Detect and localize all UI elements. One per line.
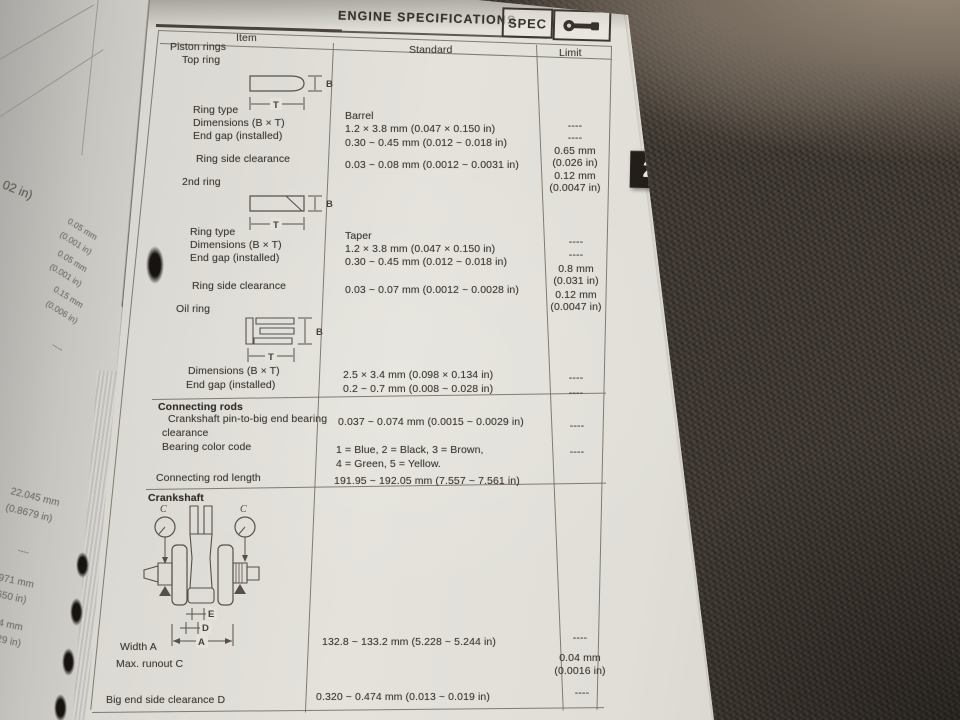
row-label-pin-bearing-clearance-2: clearance	[162, 427, 208, 439]
dim-label-d: D	[202, 623, 209, 634]
row-label-end-gap: End gap (installed)	[186, 379, 275, 391]
cell-limit: ----	[540, 446, 614, 458]
cell-limit: ----	[539, 249, 613, 261]
page-title: ENGINE SPECIFICATIONS	[338, 9, 517, 28]
cell-standard: 0.037 ~ 0.074 mm (0.0015 ~ 0.0029 in)	[338, 416, 524, 428]
dim-label-c: C	[240, 504, 247, 515]
binding-hole	[62, 648, 75, 676]
page-fold-line	[0, 5, 94, 63]
row-label-ring-type: Ring type	[190, 226, 235, 238]
cell-limit: (0.0047 in)	[538, 182, 612, 194]
cell-limit: ----	[538, 120, 612, 132]
cell-limit: ----	[539, 372, 613, 384]
section-title-connecting-rods: Connecting rods	[158, 401, 243, 413]
cell-limit: 0.8 mm	[539, 263, 613, 275]
cell-standard: 1.2 × 3.8 mm (0.047 × 0.150 in)	[345, 123, 495, 135]
cell-limit: (0.0016 in)	[543, 665, 617, 677]
cell-limit: ----	[543, 632, 617, 644]
margin-fragment: ----	[50, 340, 65, 354]
cell-limit: ----	[545, 687, 619, 699]
row-label-dimensions: Dimensions (B × T)	[188, 365, 280, 377]
cell-limit: 0.65 mm	[538, 145, 612, 157]
margin-fragment: 4 mm	[0, 618, 24, 634]
cell-limit: ----	[540, 420, 614, 432]
row-label-ring-type: Ring type	[193, 104, 238, 116]
second-ring-cross-section-diagram: B T	[242, 190, 342, 234]
table-bottom-border	[92, 707, 604, 713]
cell-limit: (0.0047 in)	[539, 301, 613, 313]
cell-standard: 0.320 ~ 0.474 mm (0.013 ~ 0.019 in)	[316, 691, 490, 703]
dim-label-a: A	[198, 637, 205, 648]
column-header-limit: Limit	[559, 47, 582, 59]
cell-standard: 0.03 ~ 0.07 mm (0.0012 ~ 0.0028 in)	[345, 284, 519, 296]
row-label-connecting-rod-length: Connecting rod length	[156, 472, 261, 484]
page-edge-highlight	[623, 4, 727, 720]
oil-ring-cross-section-diagram: B T	[238, 314, 348, 366]
dim-label-c: C	[160, 504, 167, 515]
cell-limit: 0.12 mm	[539, 289, 613, 301]
cell-limit: ----	[539, 387, 613, 399]
cell-standard: 0.2 ~ 0.7 mm (0.008 ~ 0.028 in)	[343, 383, 493, 395]
dim-label-b: B	[326, 199, 333, 210]
manual-page: ENGINE SPECIFICATIONS SPEC Item Standard…	[0, 0, 960, 720]
cell-limit: ----	[539, 236, 613, 248]
cell-standard: 4 = Green, 5 = Yellow.	[336, 458, 441, 470]
cell-standard: 0.03 ~ 0.08 mm (0.0012 ~ 0.0031 in)	[345, 159, 519, 171]
dim-label-e: E	[208, 609, 214, 620]
row-label-end-gap: End gap (installed)	[190, 252, 279, 264]
row-label-ring-side-clearance: Ring side clearance	[196, 153, 290, 165]
margin-fragment: 971 mm	[0, 572, 35, 590]
cell-standard: 0.30 ~ 0.45 mm (0.012 ~ 0.018 in)	[345, 137, 507, 149]
crankshaft-diagram: C C E	[140, 500, 280, 650]
row-label-big-end-side-clearance: Big end side clearance D	[106, 694, 225, 706]
row-label-oil-ring: Oil ring	[176, 303, 210, 315]
binding-hole	[54, 694, 67, 720]
top-ring-cross-section-diagram: B T	[242, 70, 342, 114]
row-label-max-runout-c: Max. runout C	[116, 658, 183, 670]
dim-label-b: B	[326, 79, 333, 90]
spec-icon-box	[553, 9, 612, 42]
row-label-bearing-color-code: Bearing color code	[162, 441, 251, 453]
cell-limit: ----	[538, 132, 612, 144]
margin-fragment: 02 in)	[1, 178, 35, 203]
cell-standard: 132.8 ~ 133.2 mm (5.228 ~ 5.244 in)	[322, 636, 496, 648]
column-header-item: Item	[236, 32, 257, 44]
row-label-width-a: Width A	[120, 641, 157, 653]
dim-label-t: T	[273, 100, 279, 111]
row-label-pin-bearing-clearance: Crankshaft pin-to-big end bearing	[168, 413, 327, 425]
dim-label-t: T	[273, 220, 279, 231]
row-label-end-gap: End gap (installed)	[193, 130, 282, 142]
margin-fragment: ----	[17, 545, 30, 557]
cell-standard: 1.2 × 3.8 mm (0.047 × 0.150 in)	[345, 243, 495, 255]
row-label-dimensions: Dimensions (B × T)	[190, 239, 282, 251]
photo-of-manual-page: 02 in) 0.05 mm (0.001 in) 0.05 mm (0.001…	[0, 0, 960, 720]
margin-fragment: 650 in)	[0, 589, 27, 606]
column-header-standard: Standard	[409, 44, 452, 56]
cell-standard: 1 = Blue, 2 = Black, 3 = Brown,	[336, 444, 484, 456]
margin-fragment: 29 in)	[0, 634, 22, 650]
row-label-top-ring: Top ring	[182, 54, 220, 66]
cell-limit: (0.031 in)	[539, 275, 613, 287]
row-label-ring-side-clearance: Ring side clearance	[192, 280, 286, 292]
cell-limit: 0.12 mm	[538, 170, 612, 182]
row-label-2nd-ring: 2nd ring	[182, 176, 221, 188]
binding-hole	[70, 598, 83, 626]
chapter-tab-2: 2	[630, 151, 669, 189]
cell-standard: 2.5 × 3.4 mm (0.098 × 0.134 in)	[343, 369, 493, 381]
spec-chapter-badge: SPEC	[502, 7, 554, 38]
column-separator-item-standard	[305, 43, 334, 712]
spec-wrench-icon	[562, 17, 602, 34]
dim-label-b: B	[316, 327, 323, 338]
page-fold-line	[81, 0, 99, 155]
cell-standard: Barrel	[345, 110, 374, 122]
row-label-piston-rings: Piston rings	[170, 41, 226, 53]
cell-standard: 0.30 ~ 0.45 mm (0.012 ~ 0.018 in)	[345, 256, 507, 268]
cell-limit: 0.04 mm	[543, 652, 617, 664]
cell-standard: Taper	[345, 230, 372, 242]
binding-hole	[76, 552, 89, 578]
dim-label-t: T	[268, 352, 274, 363]
table-header-underline	[160, 43, 612, 60]
binding-hole	[146, 246, 164, 284]
cell-standard: 191.95 ~ 192.05 mm (7.557 ~ 7.561 in)	[334, 475, 520, 487]
row-label-dimensions: Dimensions (B × T)	[193, 117, 285, 129]
cell-limit: (0.026 in)	[538, 157, 612, 169]
